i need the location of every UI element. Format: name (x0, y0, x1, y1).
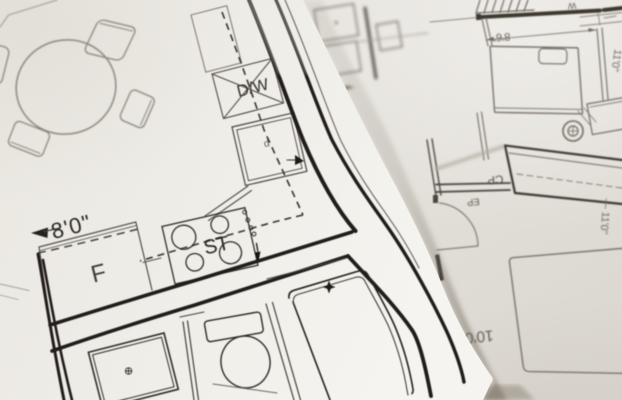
svg-text:CP: CP (486, 172, 503, 186)
svg-text:EP: EP (466, 195, 480, 207)
svg-text:W: W (567, 1, 577, 11)
svg-text:8'6": 8'6" (492, 30, 511, 43)
